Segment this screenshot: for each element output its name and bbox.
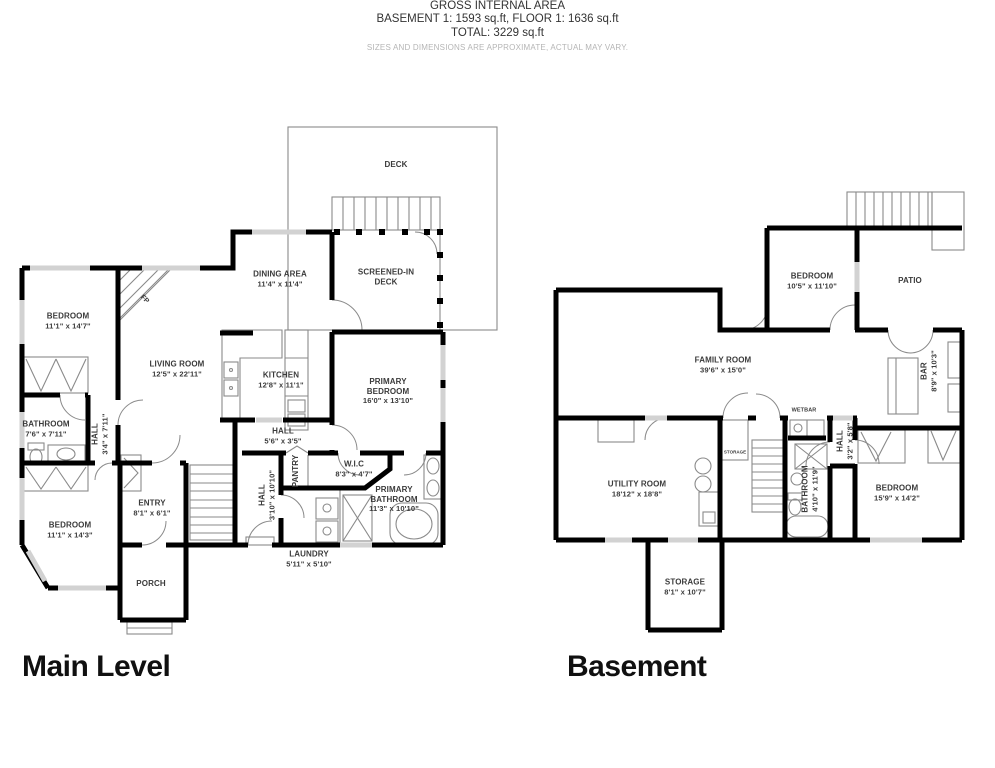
garage-threshold: [246, 537, 274, 545]
room-label-wetbar: WETBAR: [792, 408, 817, 415]
sink: [57, 448, 75, 460]
stair-landing: [932, 192, 964, 250]
main-level-title: Main Level: [22, 650, 170, 684]
double-vanity: [424, 455, 443, 499]
room-label-kitchen: KITCHEN 12'8" x 11'1": [258, 371, 303, 390]
gross-area-footer: GROSS INTERNAL AREA BASEMENT 1: 1593 sq.…: [0, 0, 995, 52]
room-label-hall-2: HALL 5'6" x 3'5": [264, 427, 301, 446]
room-label-living-room: LIVING ROOM 12'5" x 22'11": [150, 360, 205, 379]
bar-counter: [888, 358, 918, 414]
basement-walls: [556, 228, 962, 630]
room-label-deck: DECK: [384, 160, 407, 170]
room-label-basement-hall: HALL 3'2" x 5'8": [836, 422, 855, 459]
room-label-basement-bedroom-1: BEDROOM 10'5" x 11'10": [787, 272, 837, 291]
floorplan-page: DECK SCREENED-IN DECK DINING AREA 11'4" …: [0, 0, 995, 768]
room-label-laundry: LAUNDRY 5'11" x 5'10": [286, 550, 331, 569]
room-label-entry: ENTRY 8'1" x 6'1": [133, 499, 170, 518]
deck-and-stairs: [127, 127, 964, 634]
room-label-utility-room: UTILITY ROOM 18'12" x 18'8": [608, 480, 666, 499]
basement-stairs: [752, 440, 783, 512]
room-label-screened-in-deck: SCREENED-IN DECK: [349, 267, 423, 286]
room-label-pantry: PANTRY: [291, 455, 301, 488]
furnace: [699, 492, 719, 526]
room-label-bar: BAR 8'9" x 10'3": [920, 350, 939, 392]
room-label-primary-bathroom: PRIMARY BATHROOM 11'3" x 10'10": [365, 485, 423, 513]
room-label-bedroom-2: BEDROOM 11'1" x 14'3": [47, 521, 92, 540]
deck-stairs: [332, 197, 440, 230]
basement-title: Basement: [567, 650, 706, 684]
water-heater: [695, 458, 711, 474]
room-label-dining-area: DINING AREA 11'4" x 11'4": [253, 270, 307, 289]
room-label-basement-storage: STORAGE 8'1" x 10'7": [664, 578, 706, 597]
room-label-bathroom: BATHROOM 7'6" x 7'11": [22, 420, 69, 439]
room-label-storage-closet: STORAGE: [724, 449, 746, 454]
room-label-family-room: FAMILY ROOM 39'6" x 15'0": [695, 356, 752, 375]
room-label-bedroom-1: BEDROOM 11'1" x 14'7": [45, 312, 90, 331]
main-stairs: [190, 465, 233, 540]
room-label-patio: PATIO: [898, 276, 922, 286]
room-label-porch: PORCH: [136, 579, 165, 589]
deck-outline: [288, 127, 497, 330]
room-label-hall-3: HALL 3'10" x 10'10": [258, 470, 277, 520]
footer-areas: BASEMENT 1: 1593 sq.ft, FLOOR 1: 1636 sq…: [0, 13, 995, 26]
room-label-basement-bedroom-2: BEDROOM 15'9" x 14'2": [874, 484, 920, 503]
room-label-primary-bedroom: PRIMARY BEDROOM 16'0" x 13'10": [359, 377, 417, 405]
room-label-wic: W.I.C 8'3" x 4'7": [335, 460, 372, 479]
main-level-walls: [22, 232, 443, 620]
footer-total: TOTAL: 3229 sq.ft: [0, 27, 995, 40]
room-label-basement-bathroom: BATHROOM 4'10" x 11'9": [801, 465, 820, 512]
footer-disclaimer: SIZES AND DIMENSIONS ARE APPROXIMATE, AC…: [0, 43, 995, 52]
basement-tub: [786, 516, 828, 537]
footer-heading: GROSS INTERNAL AREA: [0, 0, 995, 13]
room-label-hall-1: HALL 3'4" x 7'11": [91, 413, 110, 454]
